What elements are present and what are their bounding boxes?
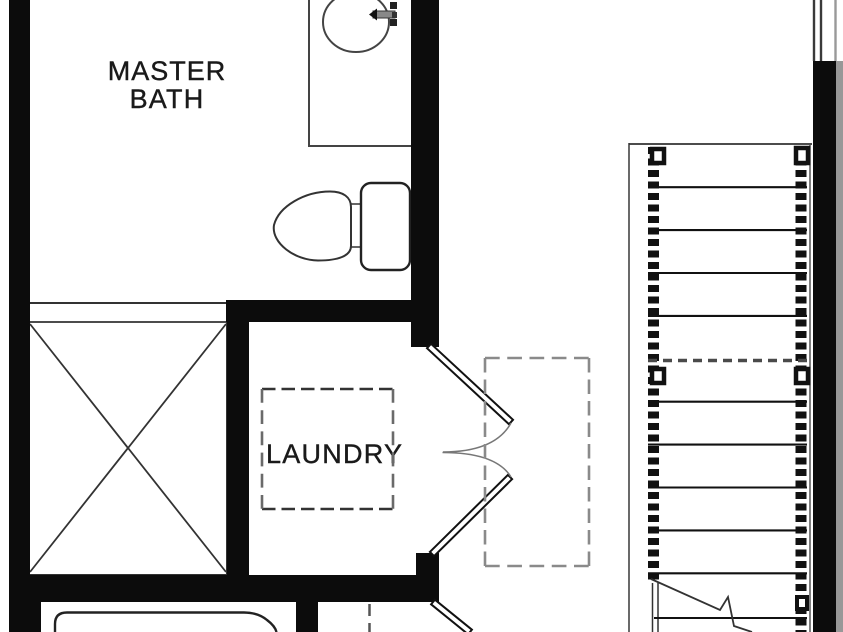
svg-text:LAUNDRY: LAUNDRY [266, 439, 402, 469]
svg-text:BATH: BATH [130, 84, 205, 114]
svg-text:MASTER: MASTER [108, 56, 227, 86]
